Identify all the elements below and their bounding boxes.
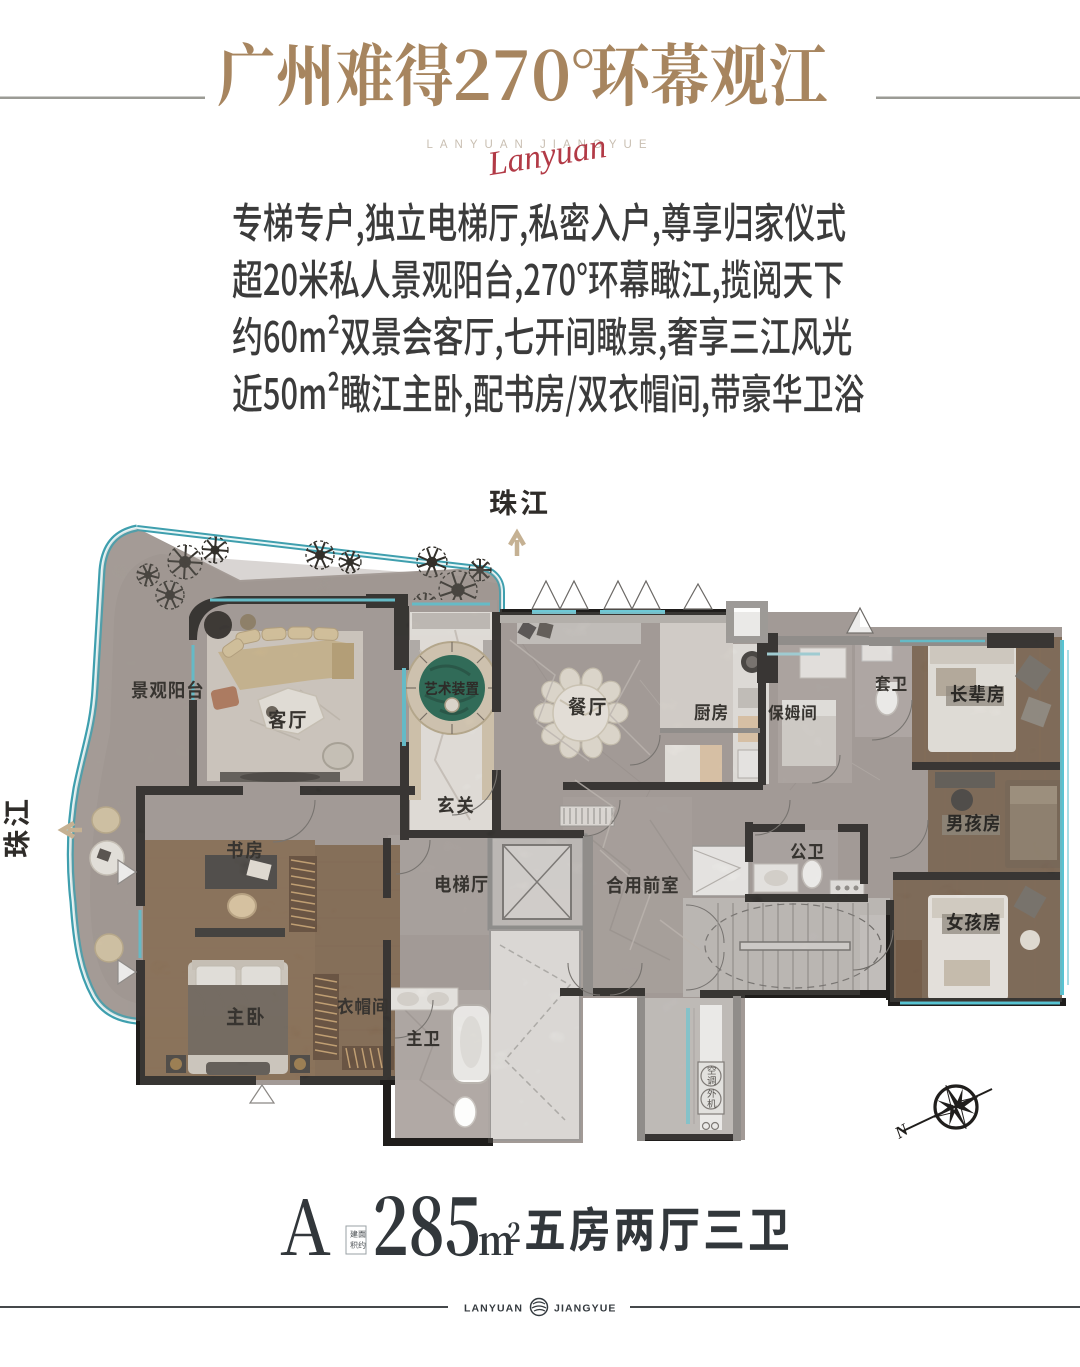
svg-text:Lanyuan: Lanyuan: [485, 128, 609, 183]
svg-text:JIANGYUE: JIANGYUE: [554, 1303, 616, 1315]
svg-text:LANYUAN: LANYUAN: [464, 1303, 523, 1315]
svg-text:N: N: [891, 1120, 913, 1143]
